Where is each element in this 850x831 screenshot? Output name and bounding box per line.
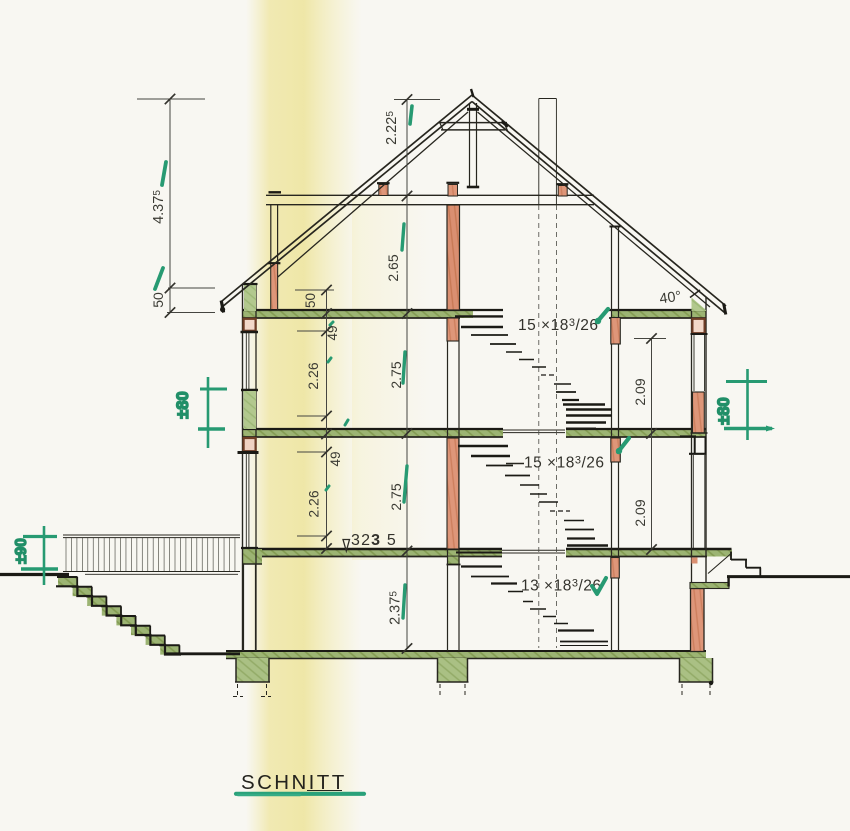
svg-text:2.09: 2.09 <box>632 499 648 526</box>
svg-text:±90: ±90 <box>13 538 30 564</box>
svg-text:50: 50 <box>303 293 318 308</box>
svg-text:2.26: 2.26 <box>305 362 321 389</box>
svg-text:40°: 40° <box>658 289 682 308</box>
svg-text:2.09: 2.09 <box>632 378 648 405</box>
svg-text:2.65: 2.65 <box>385 254 401 281</box>
svg-text:±80: ±80 <box>174 391 192 418</box>
svg-text:50: 50 <box>150 292 166 308</box>
svg-text:49: 49 <box>328 451 343 466</box>
svg-text:±80: ±80 <box>715 397 733 424</box>
svg-text:2.75: 2.75 <box>388 483 404 510</box>
svg-text:15 ×183/26: 15 ×183/26 <box>524 455 605 472</box>
svg-text:2.26: 2.26 <box>306 490 322 517</box>
svg-text:323 5: 323 5 <box>351 532 397 549</box>
svg-text:13 ×183/26: 13 ×183/26 <box>521 578 602 595</box>
svg-text:15 ×183/26: 15 ×183/26 <box>518 317 599 334</box>
svg-text:2.75: 2.75 <box>388 361 404 388</box>
svg-text:49: 49 <box>325 325 340 340</box>
